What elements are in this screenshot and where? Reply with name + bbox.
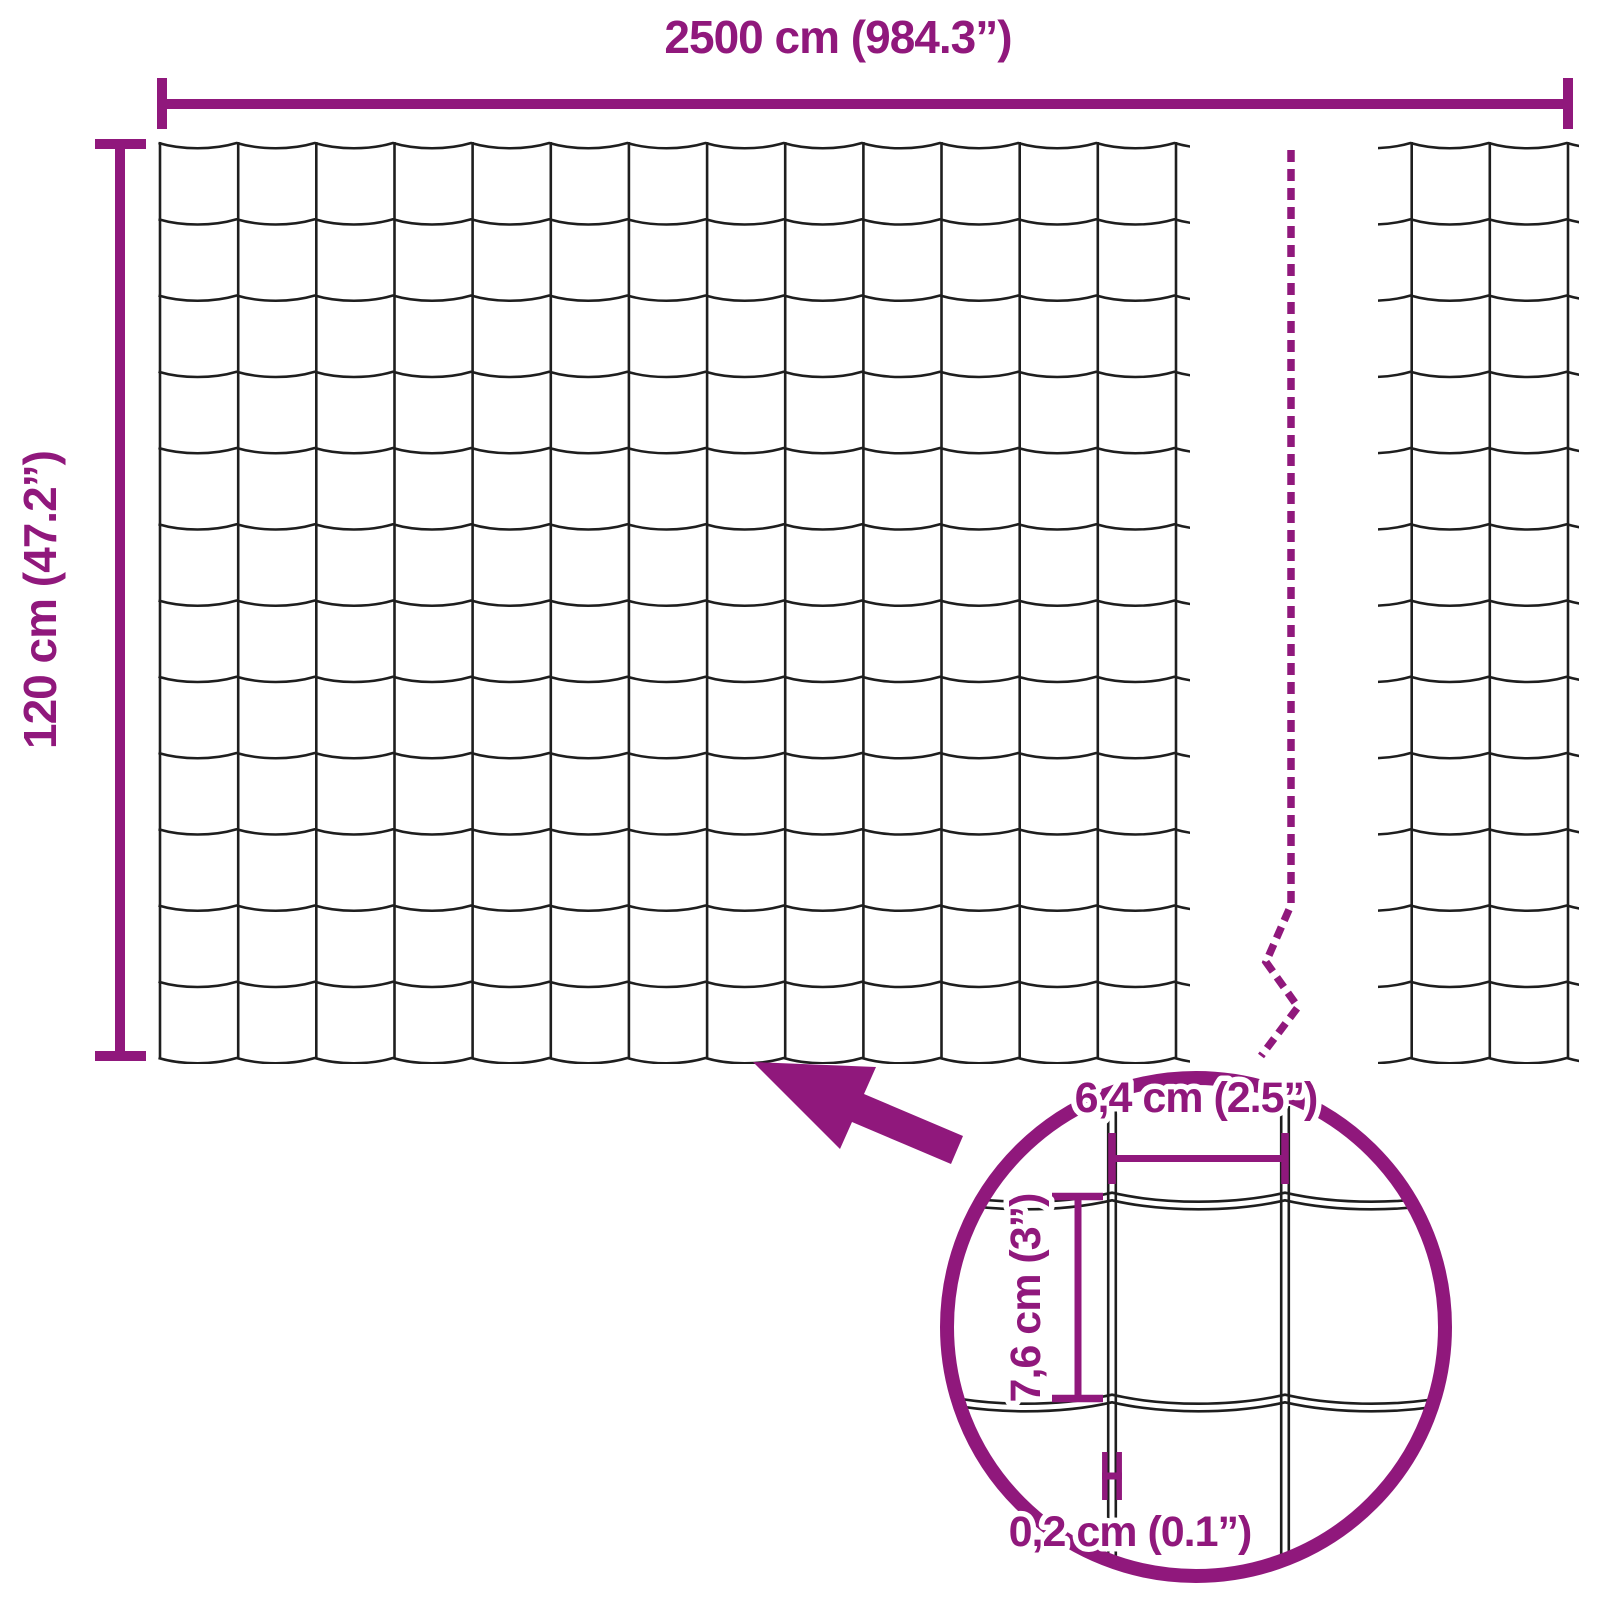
mesh-wire bbox=[1332, 372, 1600, 377]
mesh-panel-continued bbox=[1332, 142, 1600, 1063]
mesh-wire bbox=[159, 524, 1253, 529]
mesh-wire bbox=[1332, 677, 1600, 682]
break-line bbox=[1261, 150, 1298, 1056]
zoom-arrow-icon bbox=[753, 1062, 963, 1164]
mesh-wire bbox=[1332, 1058, 1600, 1063]
mesh-wire bbox=[159, 677, 1253, 682]
mesh-wire bbox=[159, 296, 1253, 301]
mesh-wire bbox=[1332, 524, 1600, 529]
mesh-wire bbox=[159, 448, 1253, 453]
mesh-wire bbox=[159, 143, 1253, 1063]
opening-height-label: 7,6 cm (3”) bbox=[1002, 1194, 1050, 1403]
mesh-wire bbox=[159, 1058, 1253, 1063]
mesh-wire bbox=[1332, 296, 1600, 301]
mesh-panel-main bbox=[159, 142, 1253, 1063]
mesh-wire bbox=[159, 982, 1253, 987]
mesh-wire bbox=[159, 829, 1253, 834]
mesh-wire bbox=[1332, 143, 1600, 1063]
opening-width-label: 6,4 cm (2.5”) bbox=[1075, 1074, 1318, 1122]
height-dimension: 120 cm (47.2”) bbox=[14, 144, 146, 1056]
mesh-wire bbox=[1332, 601, 1600, 606]
height-dimension-label: 120 cm (47.2”) bbox=[14, 451, 66, 749]
product-dimension-diagram: 2500 cm (984.3”) 120 cm (47.2”) 6,4 bbox=[0, 0, 1600, 1600]
mesh-wire bbox=[1332, 143, 1600, 148]
wire-thickness-dimension bbox=[1102, 1452, 1122, 1500]
zoom-detail: 6,4 cm (2.5”) 7,6 cm (3”) 0,2 cm (0.1”) bbox=[939, 1074, 1458, 1582]
mesh-wire bbox=[159, 372, 1253, 377]
wire-thickness-label: 0,2 cm (0.1”) bbox=[1009, 1508, 1252, 1556]
diagram-svg: 2500 cm (984.3”) 120 cm (47.2”) 6,4 bbox=[0, 0, 1600, 1600]
mesh-wire bbox=[159, 906, 1253, 911]
opening-width-dimension bbox=[1112, 1133, 1285, 1184]
width-dimension: 2500 cm (984.3”) bbox=[162, 11, 1568, 129]
mesh-wire bbox=[159, 219, 1253, 224]
mesh-wire bbox=[159, 753, 1253, 758]
mesh-wire bbox=[1332, 753, 1600, 758]
mesh-wire bbox=[1332, 829, 1600, 834]
width-dimension-label: 2500 cm (984.3”) bbox=[664, 11, 1011, 63]
mesh-wire bbox=[159, 143, 1253, 148]
mesh-wire bbox=[1332, 219, 1600, 224]
mesh-wire bbox=[1332, 982, 1600, 987]
mesh-wire bbox=[1332, 906, 1600, 911]
mesh-wire bbox=[159, 601, 1253, 606]
opening-height-dimension bbox=[1052, 1197, 1103, 1399]
mesh-wire bbox=[1332, 448, 1600, 453]
